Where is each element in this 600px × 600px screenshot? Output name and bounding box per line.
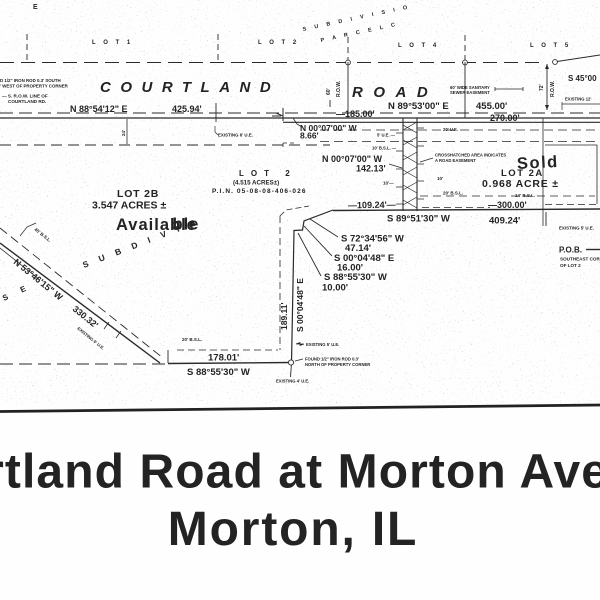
svg-text:LOT 2B: LOT 2B [117, 188, 159, 200]
svg-text:Morton, IL: Morton, IL [168, 503, 418, 556]
svg-text:72': 72' [539, 84, 545, 91]
svg-text:COURTLAND: COURTLAND [100, 79, 280, 96]
svg-text:425.94': 425.94' [172, 104, 202, 114]
svg-text:N 89°53'00" E: N 89°53'00" E [388, 101, 449, 112]
svg-text:8.66': 8.66' [300, 131, 319, 141]
svg-text:N 88°54'12" E: N 88°54'12" E [70, 104, 128, 114]
svg-text:LOT 2: LOT 2 [239, 169, 297, 178]
svg-text:10'—: 10'— [383, 181, 394, 186]
svg-text:NORTH OF PROPERTY CORNER: NORTH OF PROPERTY CORNER [305, 362, 370, 367]
svg-text:R.O.W.: R.O.W. [550, 80, 556, 97]
svg-text:S 45°00: S 45°00 [568, 74, 597, 83]
svg-text:S 89°51'30" W: S 89°51'30" W [387, 214, 450, 225]
svg-text:COURTLAND RD.: COURTLAND RD. [8, 99, 46, 104]
svg-text:N 00°07'00" W: N 00°07'00" W [322, 154, 383, 164]
svg-text:455.00': 455.00' [476, 101, 507, 112]
svg-text:L O T 5: L O T 5 [530, 43, 571, 49]
svg-text:S 00°04'48" E: S 00°04'48" E [295, 278, 305, 332]
svg-text:S 88°55'30" W: S 88°55'30" W [324, 272, 387, 283]
svg-text:L O T 1: L O T 1 [92, 40, 133, 46]
svg-text:178.01': 178.01' [208, 353, 239, 364]
svg-text:E: E [33, 4, 38, 11]
svg-text:SOUTHEAST CORNER: SOUTHEAST CORNER [560, 257, 600, 262]
svg-text:409.24': 409.24' [489, 216, 520, 227]
svg-text:S 88°55'30" W: S 88°55'30" W [187, 367, 250, 378]
svg-text:Courtland Road at Morton Avenu: Courtland Road at Morton Avenue [0, 446, 600, 499]
svg-text:60': 60' [326, 88, 332, 95]
svg-text:L O T 2: L O T 2 [258, 40, 299, 46]
svg-text:OF LOT 2: OF LOT 2 [560, 263, 581, 268]
svg-text:ROAD: ROAD [352, 84, 438, 101]
svg-text:—300.00': —300.00' [488, 200, 527, 210]
svg-text:—185.00': —185.00' [336, 109, 375, 119]
svg-text:EXISTING 4' U.E.: EXISTING 4' U.E. [276, 379, 309, 384]
svg-text:189.11': 189.11' [279, 302, 289, 330]
svg-text:A ROAD EASEMENT: A ROAD EASEMENT [435, 158, 476, 163]
svg-text:3.547 ACRES ±: 3.547 ACRES ± [92, 200, 166, 212]
svg-text:20' B.S.L.: 20' B.S.L. [443, 191, 463, 196]
svg-text:270.00': 270.00' [490, 113, 520, 123]
svg-text:EXISTING 12': EXISTING 12' [565, 97, 591, 102]
svg-text:142.13': 142.13' [356, 164, 386, 174]
svg-text:5' U.E. —: 5' U.E. — [377, 133, 396, 138]
svg-text:10.00': 10.00' [322, 283, 348, 294]
svg-text:' WEST OF PROPERTY CORNER: ' WEST OF PROPERTY CORNER [0, 84, 69, 89]
svg-text:0.968 ACRE ±: 0.968 ACRE ± [482, 178, 559, 190]
svg-text:R.O.W.: R.O.W. [336, 80, 342, 97]
svg-text:SEWER EASEMENT: SEWER EASEMENT [450, 90, 490, 95]
svg-text:10' B.S.L. —: 10' B.S.L. — [372, 146, 397, 151]
svg-text:EXISTING 6' U.E.: EXISTING 6' U.E. [218, 133, 253, 138]
svg-text:FOUND 1/2" IRON ROD 0.3': FOUND 1/2" IRON ROD 0.3' [305, 357, 359, 362]
svg-text:24': 24' [121, 130, 126, 136]
svg-text:D 1/2" IRON ROD 0.3' SOUTH: D 1/2" IRON ROD 0.3' SOUTH [0, 78, 61, 83]
svg-text:P.I.N. 05-08-08-406-026: P.I.N. 05-08-08-406-026 [212, 188, 307, 195]
svg-text:14' B.S.L.: 14' B.S.L. [515, 193, 535, 198]
svg-text:20' B.S.L.: 20' B.S.L. [182, 337, 202, 342]
svg-text:—109.24'—: —109.24'— [348, 200, 396, 211]
svg-text:EXISTING 5' U.E.: EXISTING 5' U.E. [559, 226, 594, 231]
svg-text:EXISTING 5' U.E.: EXISTING 5' U.E. [306, 342, 339, 347]
svg-text:10': 10' [437, 176, 443, 181]
svg-text:CROSSHATCHED AREA INDICATES: CROSSHATCHED AREA INDICATES [435, 153, 506, 158]
svg-text:20' U.E.: 20' U.E. [443, 127, 458, 132]
svg-text:(4.515 ACRES±): (4.515 ACRES±) [233, 180, 279, 187]
svg-text:P.O.B.: P.O.B. [559, 246, 582, 255]
svg-text:— S. R.O.W. LINE OF: — S. R.O.W. LINE OF [2, 94, 48, 99]
svg-text:L O T 4: L O T 4 [398, 43, 439, 49]
